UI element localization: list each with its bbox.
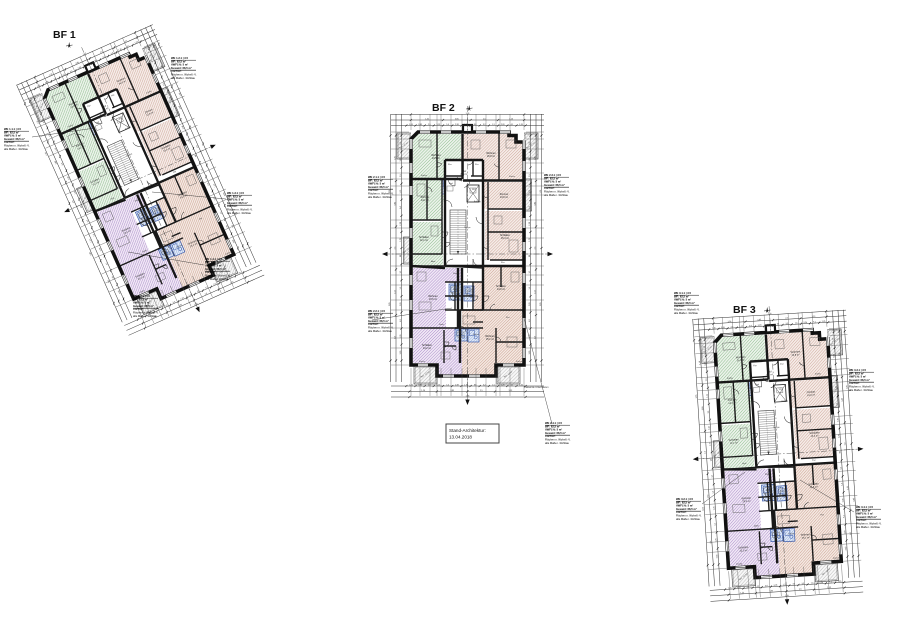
svg-text:Stand-Architektur:: Stand-Architektur: bbox=[449, 428, 486, 433]
svg-text:alle Maße i. Rohbau: alle Maße i. Rohbau bbox=[856, 525, 881, 529]
svg-text:alle Maße i. Rohbau: alle Maße i. Rohbau bbox=[227, 211, 252, 215]
svg-text:alle Maße i. Rohbau: alle Maße i. Rohbau bbox=[849, 388, 874, 392]
svg-text:BF 1: BF 1 bbox=[53, 29, 76, 41]
svg-text:BF 3: BF 3 bbox=[733, 304, 756, 316]
svg-text:alle Maße i. Rohbau: alle Maße i. Rohbau bbox=[171, 76, 196, 80]
svg-text:alle Maße i. Rohbau: alle Maße i. Rohbau bbox=[4, 147, 29, 151]
svg-text:Passende Unterbauten: Passende Unterbauten bbox=[524, 386, 549, 389]
svg-text:alle Maße i. Rohbau: alle Maße i. Rohbau bbox=[676, 517, 701, 521]
svg-text:alle Maße i. Rohbau: alle Maße i. Rohbau bbox=[368, 329, 393, 333]
svg-text:alle Maße i. Rohbau: alle Maße i. Rohbau bbox=[674, 311, 699, 315]
svg-text:BF 2: BF 2 bbox=[432, 102, 455, 114]
svg-text:13.04.2018: 13.04.2018 bbox=[449, 435, 472, 440]
svg-text:alle Maße i. Rohbau: alle Maße i. Rohbau bbox=[545, 441, 570, 445]
svg-text:alle Maße i. Rohbau: alle Maße i. Rohbau bbox=[133, 314, 158, 318]
svg-text:alle Maße i. Rohbau: alle Maße i. Rohbau bbox=[205, 277, 230, 281]
svg-text:alle Maße i. Rohbau: alle Maße i. Rohbau bbox=[368, 195, 393, 199]
svg-text:alle Maße i. Rohbau: alle Maße i. Rohbau bbox=[544, 193, 569, 197]
